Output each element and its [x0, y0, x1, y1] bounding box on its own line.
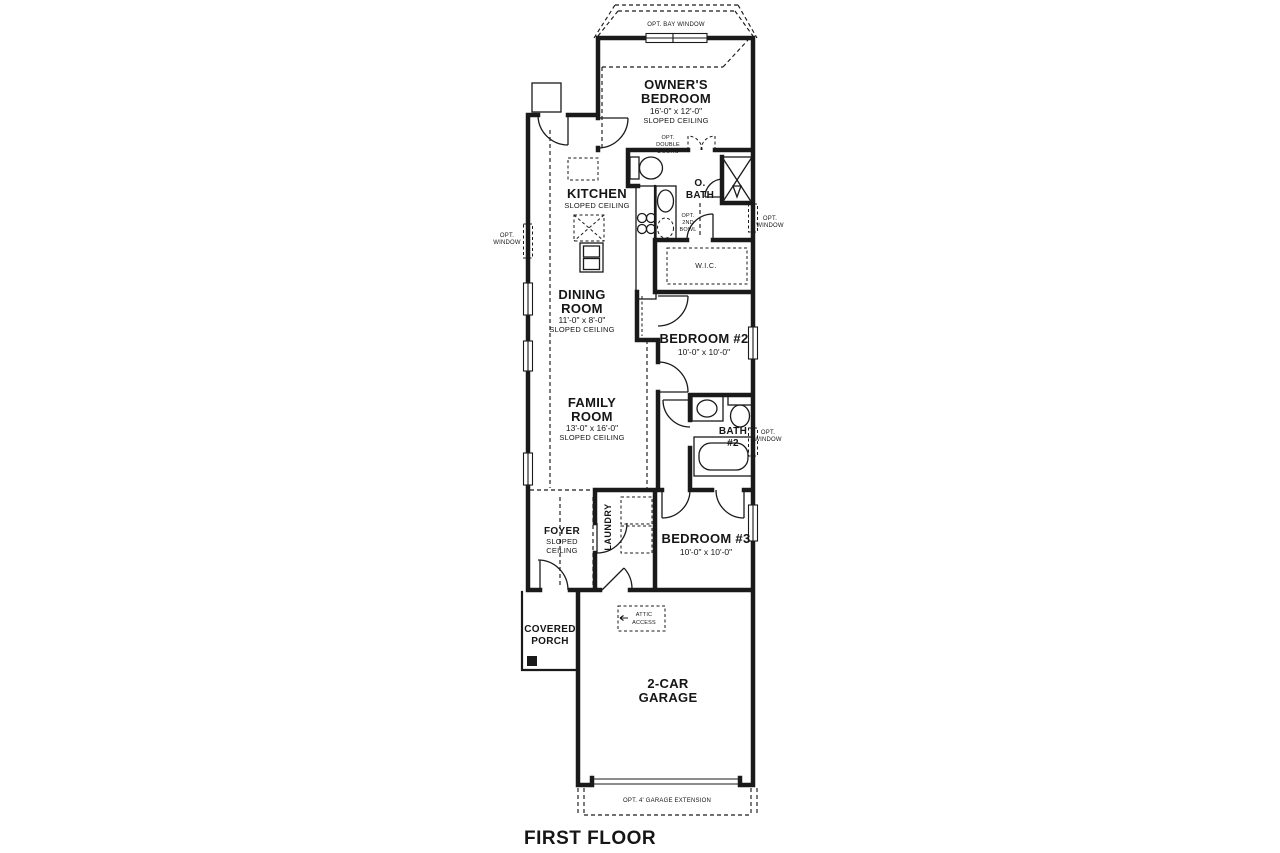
bath2-label-2: #2 — [727, 438, 739, 449]
toilet-bath2-tank — [728, 396, 752, 405]
bedroom2-label: BEDROOM #2 — [660, 331, 749, 346]
opt-window-obath-label: OPT. — [763, 216, 777, 222]
opt-window-left-label: OPT. — [500, 233, 514, 239]
kitchen-opt-cabinet — [568, 158, 598, 180]
kitchen-island-cabinet-2 — [584, 259, 600, 270]
foyer-ceiling-2: CEILING — [546, 546, 577, 555]
toilet-obath-tank — [630, 157, 639, 179]
foyer-ceiling: SLOPED — [546, 537, 578, 546]
hall-closet-door — [538, 115, 568, 145]
bathtub-basin — [699, 443, 748, 470]
owners-bedroom-ceiling: SLOPED CEILING — [643, 116, 708, 125]
bath2-door — [663, 400, 690, 427]
obath-label: O. — [694, 178, 705, 189]
owners-bedroom-label-2: BEDROOM — [641, 91, 711, 106]
dining-room-dims: 11'-0" x 8'-0" — [559, 315, 606, 325]
opt-2nd-bowl-label: OPT. — [681, 213, 694, 219]
toilet-bath2-bowl — [731, 405, 750, 427]
bath2-sink-bowl — [697, 400, 717, 417]
opt-window-bath2-label-2: WINDOW — [754, 437, 782, 443]
kitchen-ceiling: SLOPED CEILING — [564, 201, 629, 210]
garage-door — [592, 779, 740, 784]
front-door — [538, 560, 568, 590]
cooktop-burner — [638, 225, 647, 234]
opt-window-bath2-label: OPT. — [761, 430, 775, 436]
shower-head-icon — [733, 186, 741, 197]
bedroom3-dims: 10'-0" x 10'-0" — [680, 547, 732, 557]
first-floor-plan-drawing: OPT. BAY WINDOW OWNER'S BEDROOM 16'-0" x… — [0, 0, 1280, 853]
kitchen-label: KITCHEN — [567, 186, 627, 201]
obath-label-2: BATH — [686, 190, 714, 201]
garage-entry-door — [602, 568, 632, 590]
opt-bay-window-label: OPT. BAY WINDOW — [647, 22, 705, 28]
garage-label-2: GARAGE — [639, 690, 698, 705]
family-room-label-2: ROOM — [571, 409, 613, 424]
attic-access-arrow-icon — [620, 616, 628, 621]
family-room-dims: 13'-0" x 16'-0" — [566, 423, 618, 433]
washer-box — [621, 497, 652, 524]
opt-2nd-bowl-label-2: 2ND — [682, 220, 694, 226]
bedroom2-door — [658, 362, 688, 392]
foyer-label: FOYER — [544, 526, 580, 537]
opt-double-doors-label-3: DOORS — [657, 149, 678, 155]
bedroom2-closet-door — [658, 296, 688, 326]
kitchen-island-cabinet-1 — [584, 246, 600, 257]
wall-lines — [528, 38, 753, 785]
walls — [528, 38, 753, 785]
laundry-label: LAUNDRY — [603, 503, 613, 550]
dining-room-label: DINING — [558, 287, 605, 302]
opt-second-bowl-symbol — [658, 218, 674, 238]
dining-room-ceiling: SLOPED CEILING — [549, 325, 614, 334]
opt-double-doors-label: OPT. — [661, 135, 674, 141]
opt-2nd-bowl-label-3: BOWL — [680, 227, 697, 233]
labels: OPT. BAY WINDOW OWNER'S BEDROOM 16'-0" x… — [493, 22, 784, 849]
opt-window-left-label-2: WINDOW — [493, 240, 521, 246]
owners-bedroom-dims: 16'-0" x 12'-0" — [650, 106, 702, 116]
garage-label: 2-CAR — [647, 676, 689, 691]
opt-garage-extension-label: OPT. 4' GARAGE EXTENSION — [623, 798, 711, 804]
bath2-label: BATH — [719, 426, 747, 437]
floor-plan-page: OPT. BAY WINDOW OWNER'S BEDROOM 16'-0" x… — [0, 0, 1280, 853]
covered-porch-label-2: PORCH — [531, 636, 569, 647]
kitchen-island-opt-x — [574, 215, 604, 241]
bedroom3-closet-door — [716, 490, 744, 518]
dining-room-label-2: ROOM — [561, 301, 603, 316]
attic-access-label-2: ACCESS — [632, 620, 656, 626]
family-room-label: FAMILY — [568, 395, 616, 410]
owners-bedroom-label: OWNER'S — [644, 77, 708, 92]
attic-access-label: ATTIC — [636, 612, 652, 618]
opt-window-obath-label-2: WINDOW — [756, 223, 784, 229]
family-room-ceiling: SLOPED CEILING — [559, 433, 624, 442]
porch-post — [527, 656, 537, 666]
bedroom3-label: BEDROOM #3 — [662, 531, 751, 546]
opt-double-doors-label-2: DOUBLE — [656, 142, 680, 148]
fireplace-box — [532, 83, 561, 112]
bedroom3-door — [662, 490, 690, 518]
bedroom2-dims: 10'-0" x 10'-0" — [678, 347, 730, 357]
opt-double-doors-swing — [688, 136, 715, 150]
obath-sink-bowl — [658, 190, 674, 212]
wic-label: W.I.C. — [695, 263, 716, 270]
cooktop-burner — [638, 214, 647, 223]
toilet-obath-bowl — [640, 157, 663, 179]
plan-title: FIRST FLOOR — [524, 828, 656, 849]
covered-porch-label: COVERED — [524, 624, 576, 635]
